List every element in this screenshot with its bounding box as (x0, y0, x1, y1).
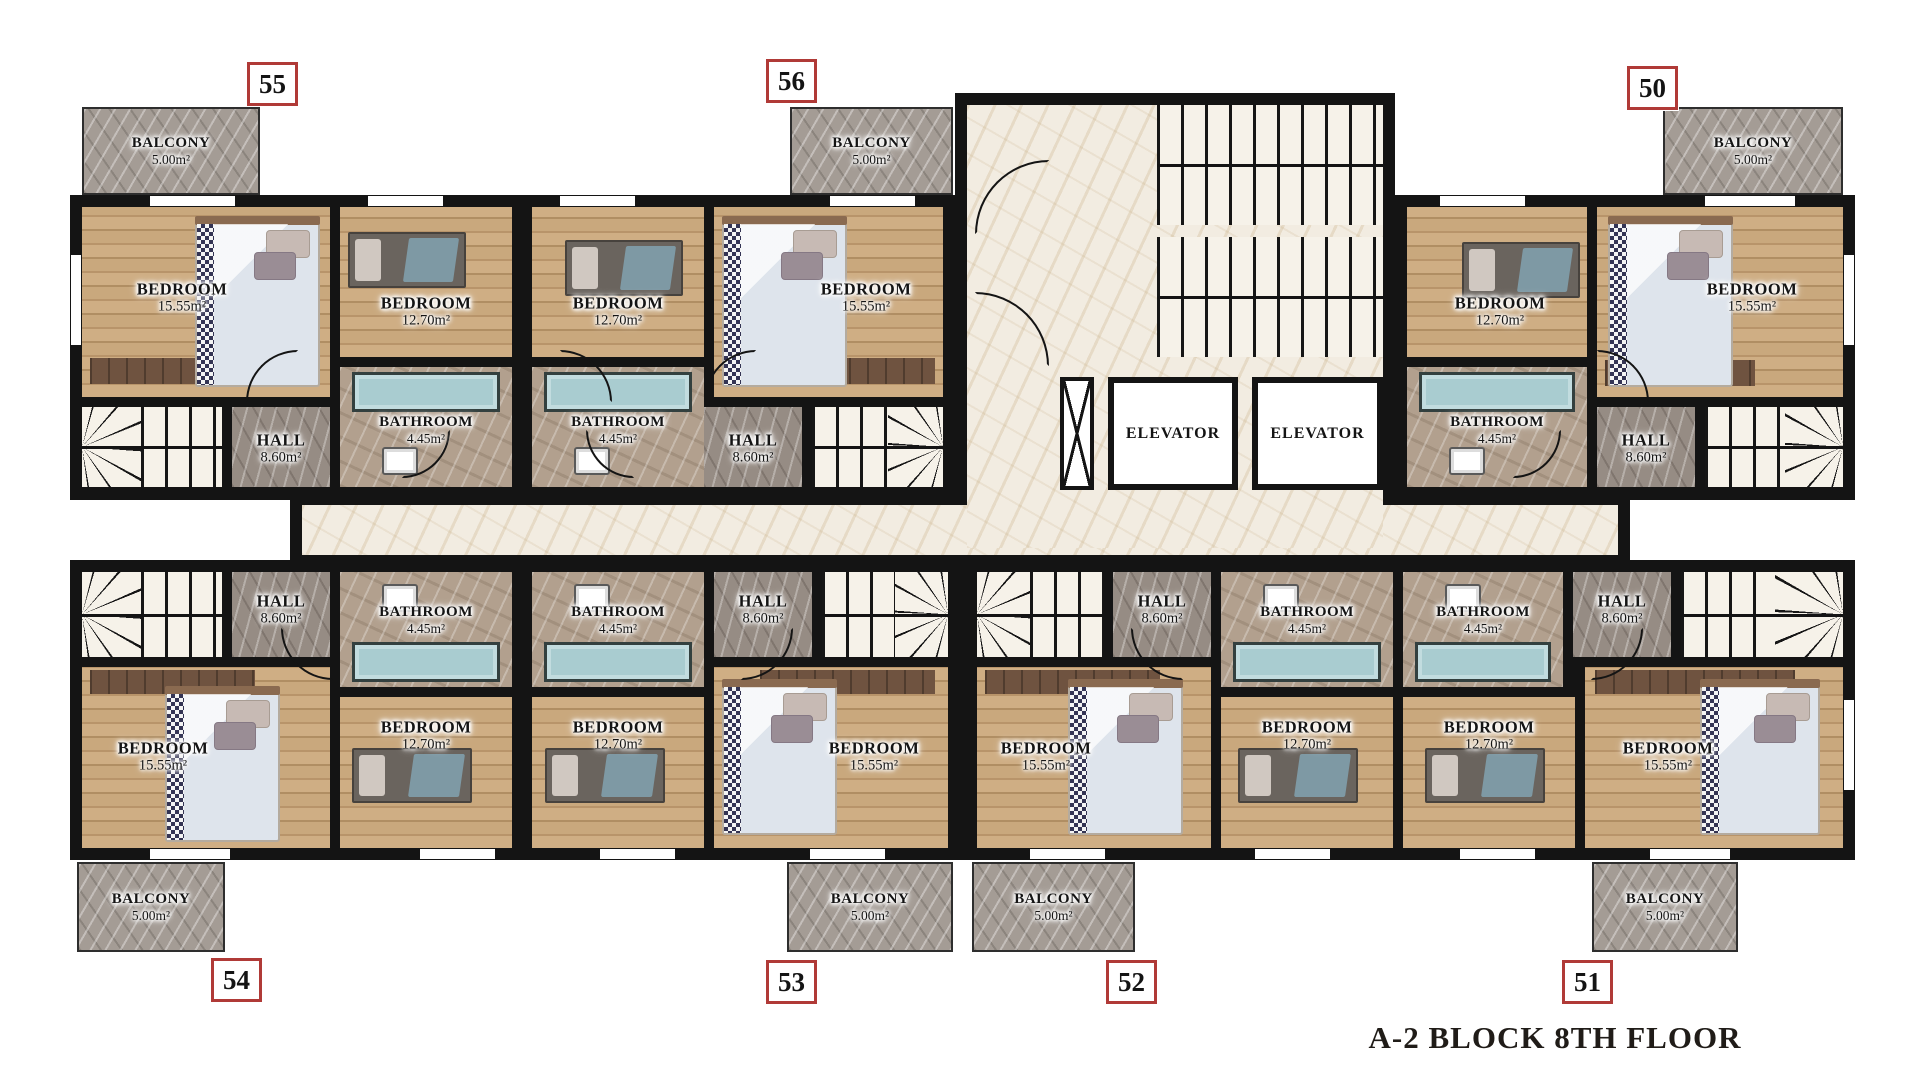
room-name-text: HALL (257, 432, 306, 450)
label-bedroom-15-55-u55: BEDROOM15.55m² (137, 281, 228, 316)
window (560, 196, 635, 206)
staircase (822, 572, 948, 657)
single-bed (348, 232, 466, 288)
staircase (82, 407, 222, 487)
room-area-text: 8.60m² (1622, 450, 1671, 466)
room-area-text: 4.45m² (571, 431, 665, 446)
room-name-text: BEDROOM (829, 740, 920, 758)
room-area-text: 15.55m² (1623, 758, 1714, 774)
unit-badge-55[interactable]: 55 (247, 62, 298, 106)
unit-badge-56[interactable]: 56 (766, 59, 817, 103)
label-bedroom-12-70-u53: BEDROOM12.70m² (573, 719, 664, 754)
label-hall-u55: HALL8.60m² (257, 432, 306, 467)
room-name-text: BATHROOM (1260, 604, 1354, 621)
label-bathroom-u52: BATHROOM4.45m² (1260, 604, 1354, 636)
label-bedroom-12-70-u56: BEDROOM12.70m² (573, 295, 664, 330)
room-area-text: 5.00m² (132, 152, 211, 167)
bathtub (352, 642, 500, 682)
staircase (1681, 572, 1843, 657)
bathtub (352, 372, 500, 412)
label-bedroom-12-70-u52: BEDROOM12.70m² (1262, 719, 1353, 754)
room-name-text: HALL (739, 593, 788, 611)
room-name-text: BATHROOM (571, 414, 665, 431)
window (71, 255, 81, 345)
room-name-text: BATHROOM (1436, 604, 1530, 621)
room-area-text: 15.55m² (137, 299, 228, 315)
room-area-text: 4.45m² (379, 621, 473, 636)
staircase (1705, 407, 1843, 487)
label-bedroom-15-55-u56: BEDROOM15.55m² (821, 281, 912, 316)
room-name-text: BALCONY (1714, 135, 1793, 152)
staircase (1157, 237, 1383, 357)
room-name-text: BEDROOM (118, 740, 209, 758)
label-bathroom-u55: BATHROOM4.45m² (379, 414, 473, 446)
window (1030, 849, 1105, 859)
room-area-text: 4.45m² (1260, 621, 1354, 636)
window (1255, 849, 1330, 859)
room-name-text: BEDROOM (381, 295, 472, 313)
room-name-text: BEDROOM (1623, 740, 1714, 758)
room-name-text: BEDROOM (1001, 740, 1092, 758)
double-bed (1700, 685, 1820, 835)
room-name-text: BALCONY (1014, 891, 1093, 908)
label-bedroom-15-55-u54: BEDROOM15.55m² (118, 740, 209, 775)
unit-badge-52[interactable]: 52 (1106, 960, 1157, 1004)
single-bed (565, 240, 683, 296)
room-area-text: 15.55m² (118, 758, 209, 774)
room-name-text: BEDROOM (381, 719, 472, 737)
label-bedroom-12-70-u55: BEDROOM12.70m² (381, 295, 472, 330)
elevator: ELEVATOR (1252, 377, 1383, 490)
room-name-text: BALCONY (831, 891, 910, 908)
single-bed (545, 748, 665, 803)
label-balcony-unit-51: BALCONY5.00m² (1626, 891, 1705, 923)
label-balcony-unit-52: BALCONY5.00m² (1014, 891, 1093, 923)
floor-plan: A-2 BLOCK 8TH FLOOR ELEVATORELEVATORBEDR… (0, 0, 1920, 1080)
label-balcony-unit-56: BALCONY5.00m² (832, 135, 911, 167)
window (600, 849, 675, 859)
room-name-text: BEDROOM (1262, 719, 1353, 737)
label-bedroom-12-70-u54: BEDROOM12.70m² (381, 719, 472, 754)
label-bathroom-u51: BATHROOM4.45m² (1436, 604, 1530, 636)
room-name-text: BEDROOM (137, 281, 228, 299)
label-bathroom-u53: BATHROOM4.45m² (571, 604, 665, 636)
unit-badge-50[interactable]: 50 (1627, 66, 1678, 110)
room-name-text: HALL (729, 432, 778, 450)
label-hall-u53: HALL8.60m² (739, 593, 788, 628)
label-bedroom-15-55-u50: BEDROOM15.55m² (1707, 281, 1798, 316)
room-area-text: 15.55m² (1001, 758, 1092, 774)
room-name-text: BALCONY (132, 135, 211, 152)
room-area-text: 5.00m² (1714, 152, 1793, 167)
staircase (1157, 105, 1383, 225)
bathtub (544, 642, 692, 682)
label-balcony-unit-53: BALCONY5.00m² (831, 891, 910, 923)
floor-title: A-2 BLOCK 8TH FLOOR (1340, 1020, 1770, 1056)
room-central-corridor (302, 505, 1618, 555)
room-area-text: 4.45m² (1436, 621, 1530, 636)
label-hall-u51: HALL8.60m² (1598, 593, 1647, 628)
window (1650, 849, 1730, 859)
unit-badge-53[interactable]: 53 (766, 960, 817, 1004)
window (830, 196, 915, 206)
unit-badge-54[interactable]: 54 (211, 958, 262, 1002)
sink (1449, 447, 1485, 475)
room-name-text: BATHROOM (379, 604, 473, 621)
staircase (977, 572, 1103, 657)
room-area-text: 15.55m² (829, 758, 920, 774)
label-bathroom-u54: BATHROOM4.45m² (379, 604, 473, 636)
room-area-text: 5.00m² (112, 908, 191, 923)
room-area-text: 8.60m² (739, 611, 788, 627)
window (1705, 196, 1795, 206)
label-bedroom-15-55-u52: BEDROOM15.55m² (1001, 740, 1092, 775)
window (150, 196, 235, 206)
room-name-text: BEDROOM (821, 281, 912, 299)
room-name-text: HALL (1138, 593, 1187, 611)
label-hall-u50: HALL8.60m² (1622, 432, 1671, 467)
room-area-text: 4.45m² (571, 621, 665, 636)
room-area-text: 4.45m² (379, 431, 473, 446)
room-area-text: 5.00m² (1626, 908, 1705, 923)
room-area-text: 5.00m² (1014, 908, 1093, 923)
single-bed (1425, 748, 1545, 803)
room-area-text: 12.70m² (381, 737, 472, 753)
room-area-text: 15.55m² (1707, 299, 1798, 315)
room-name-text: BALCONY (832, 135, 911, 152)
label-bedroom-15-55-u53: BEDROOM15.55m² (829, 740, 920, 775)
label-balcony-unit-50: BALCONY5.00m² (1714, 135, 1793, 167)
room-area-text: 12.70m² (1444, 737, 1535, 753)
label-bedroom-12-70-u50: BEDROOM12.70m² (1455, 295, 1546, 330)
room-name-text: BATHROOM (379, 414, 473, 431)
room-area-text: 12.70m² (1455, 313, 1546, 329)
label-bedroom-12-70-u51: BEDROOM12.70m² (1444, 719, 1535, 754)
room-area-text: 12.70m² (381, 313, 472, 329)
room-name-text: BEDROOM (573, 719, 664, 737)
room-area-text: 12.70m² (573, 737, 664, 753)
room-area-text: 15.55m² (821, 299, 912, 315)
room-area-text: 8.60m² (257, 450, 306, 466)
room-area-text: 5.00m² (831, 908, 910, 923)
bathtub (1233, 642, 1381, 682)
bathtub (1419, 372, 1575, 412)
label-hall-u56: HALL8.60m² (729, 432, 778, 467)
room-name-text: BEDROOM (1707, 281, 1798, 299)
elevator-label: ELEVATOR (1126, 425, 1220, 443)
room-name-text: BATHROOM (571, 604, 665, 621)
label-bathroom-u56: BATHROOM4.45m² (571, 414, 665, 446)
window (150, 849, 230, 859)
room-area-text: 4.45m² (1450, 431, 1544, 446)
single-bed (1462, 242, 1580, 298)
elevator-label: ELEVATOR (1270, 425, 1364, 443)
single-bed (352, 748, 472, 803)
bathtub (1415, 642, 1551, 682)
room-name-text: BALCONY (112, 891, 191, 908)
room-area-text: 5.00m² (832, 152, 911, 167)
room-name-text: BEDROOM (1444, 719, 1535, 737)
room-name-text: HALL (1622, 432, 1671, 450)
window (810, 849, 885, 859)
label-balcony-unit-55: BALCONY5.00m² (132, 135, 211, 167)
unit-badge-51[interactable]: 51 (1562, 960, 1613, 1004)
window (1844, 255, 1854, 345)
room-area-text: 8.60m² (257, 611, 306, 627)
room-name-text: BEDROOM (1455, 295, 1546, 313)
elevator-shaft (1060, 377, 1094, 490)
window (1440, 196, 1525, 206)
room-name-text: BALCONY (1626, 891, 1705, 908)
label-hall-u52: HALL8.60m² (1138, 593, 1187, 628)
label-bedroom-15-55-u51: BEDROOM15.55m² (1623, 740, 1714, 775)
room-area-text: 12.70m² (1262, 737, 1353, 753)
room-area-text: 8.60m² (1598, 611, 1647, 627)
room-name-text: HALL (1598, 593, 1647, 611)
room-name-text: HALL (257, 593, 306, 611)
double-bed (722, 685, 837, 835)
window (420, 849, 495, 859)
label-hall-u54: HALL8.60m² (257, 593, 306, 628)
room-area-text: 12.70m² (573, 313, 664, 329)
room-name-text: BEDROOM (573, 295, 664, 313)
room-name-text: BATHROOM (1450, 414, 1544, 431)
room-area-text: 8.60m² (1138, 611, 1187, 627)
elevator: ELEVATOR (1108, 377, 1238, 490)
staircase (812, 407, 943, 487)
label-balcony-unit-54: BALCONY5.00m² (112, 891, 191, 923)
window (368, 196, 443, 206)
room-area-text: 8.60m² (729, 450, 778, 466)
window (1460, 849, 1535, 859)
staircase (82, 572, 222, 657)
window (1844, 700, 1854, 790)
single-bed (1238, 748, 1358, 803)
label-bathroom-u50: BATHROOM4.45m² (1450, 414, 1544, 446)
